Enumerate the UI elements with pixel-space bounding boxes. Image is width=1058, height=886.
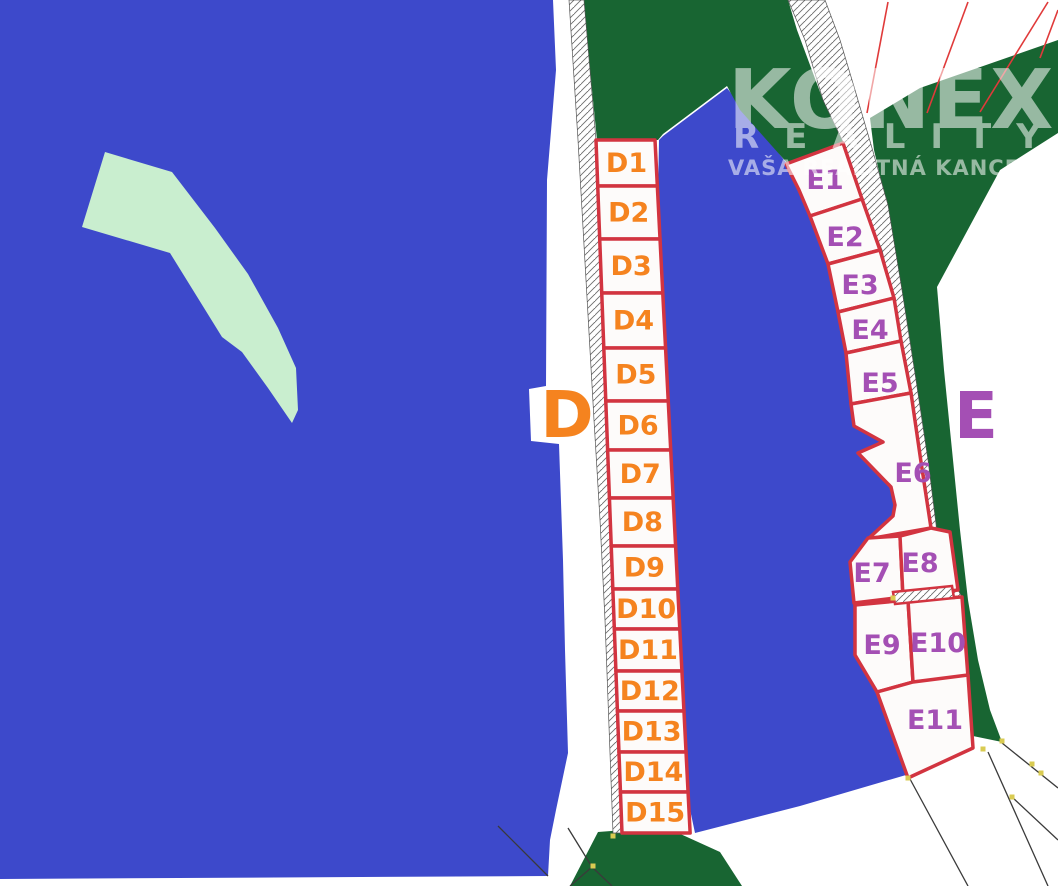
survey-marker-8 [1039,771,1044,776]
plot-label-d2: D2 [608,198,649,229]
plot-label-d14: D14 [623,757,683,788]
plot-label-d12: D12 [620,676,680,707]
plot-label-e3: E3 [841,270,878,301]
zone-label-d: D [540,379,593,453]
boundary-black-line-2 [568,828,592,867]
survey-marker-3 [891,596,896,601]
plot-label-d4: D4 [613,306,654,337]
zone-label-e: E [954,380,998,454]
plot-label-d13: D13 [622,717,682,748]
plot-label-e10: E10 [910,628,966,659]
plot-label-d1: D1 [606,148,647,179]
survey-marker-5 [981,747,986,752]
survey-marker-4 [906,776,911,781]
plot-label-e4: E4 [851,315,888,346]
plot-label-e11: E11 [907,705,963,736]
plot-label-e6: E6 [894,458,931,489]
plot-label-d11: D11 [618,635,678,666]
plot-label-e7: E7 [853,558,890,589]
plot-label-d3: D3 [610,251,651,282]
plot-label-e2: E2 [826,222,863,253]
plot-label-d8: D8 [622,507,663,538]
boundary-black-line-8 [1012,797,1058,840]
plot-label-d10: D10 [616,594,676,625]
plot-label-d7: D7 [620,459,661,490]
survey-marker-2 [611,834,616,839]
plot-label-e8: E8 [901,548,938,579]
survey-marker-9 [1010,795,1015,800]
watermark-subtitle: VAŠA REALITNÁ KANCELÁRIA [728,155,1058,180]
survey-marker-7 [1030,762,1035,767]
watermark-tagline: REALITY [733,117,1058,157]
plot-label-d15: D15 [625,798,685,829]
survey-marker-6 [1000,739,1005,744]
parcel-map-canvas: D1D2D3D4D5D6D7D8D9D10D11D12D13D14D15E1E2… [0,0,1058,886]
forest-bottom-region [570,827,742,886]
boundary-black-line-5 [910,779,968,886]
watermark: KONEX REALITY VAŠA REALITNÁ KANCELÁRIA [728,53,1058,180]
survey-marker-1 [591,864,596,869]
field-left-region [0,0,568,879]
plot-label-e9: E9 [863,630,900,661]
plot-label-d9: D9 [624,553,665,584]
plot-label-d6: D6 [617,411,658,442]
parcel-map: D1D2D3D4D5D6D7D8D9D10D11D12D13D14D15E1E2… [0,0,1058,886]
plot-label-e5: E5 [861,368,898,399]
plot-label-d5: D5 [615,360,656,391]
